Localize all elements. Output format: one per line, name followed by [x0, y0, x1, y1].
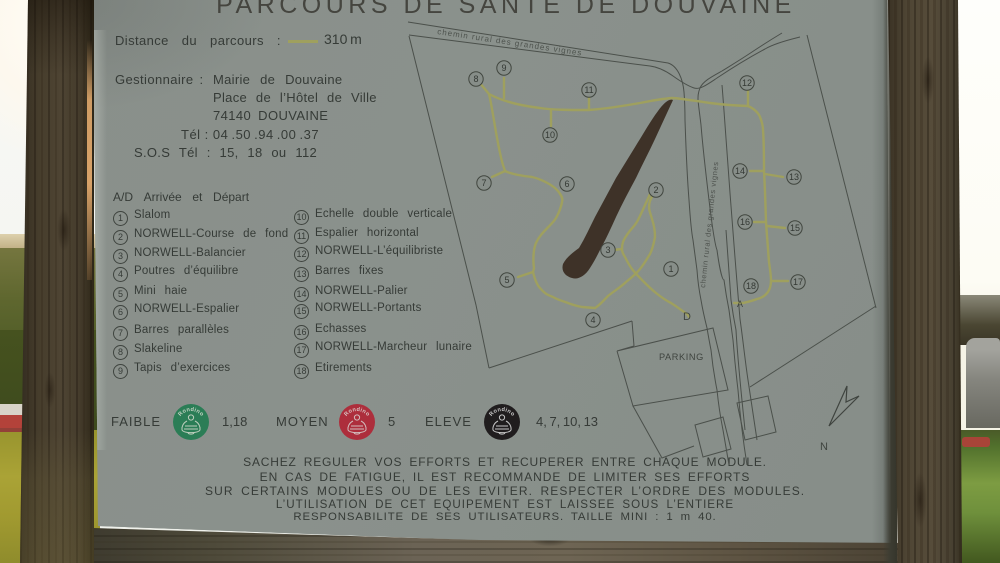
svg-text:A: A	[737, 299, 743, 309]
svg-text:D: D	[683, 311, 691, 323]
svg-text:9: 9	[501, 63, 506, 73]
svg-text:N: N	[820, 441, 828, 453]
svg-text:3: 3	[605, 245, 610, 255]
svg-text:chemin rural des grandes vigne: chemin rural des grandes vignes	[437, 27, 583, 58]
svg-text:14: 14	[735, 166, 745, 176]
svg-text:12: 12	[742, 78, 752, 88]
svg-text:2: 2	[653, 185, 658, 195]
svg-text:10: 10	[545, 130, 555, 140]
svg-text:1: 1	[668, 264, 673, 274]
svg-text:8: 8	[473, 74, 478, 84]
svg-text:PARKING: PARKING	[659, 352, 704, 362]
svg-text:6: 6	[564, 179, 569, 189]
svg-text:18: 18	[746, 281, 756, 291]
svg-text:13: 13	[789, 172, 799, 182]
svg-text:17: 17	[793, 277, 803, 287]
svg-text:5: 5	[504, 275, 509, 285]
svg-text:chemin rural des grandes vigne: chemin rural des grandes vignes	[698, 161, 720, 288]
svg-text:11: 11	[584, 85, 593, 95]
svg-text:16: 16	[740, 217, 750, 227]
svg-text:4: 4	[590, 315, 595, 325]
svg-text:15: 15	[790, 223, 800, 233]
svg-text:7: 7	[481, 178, 486, 188]
